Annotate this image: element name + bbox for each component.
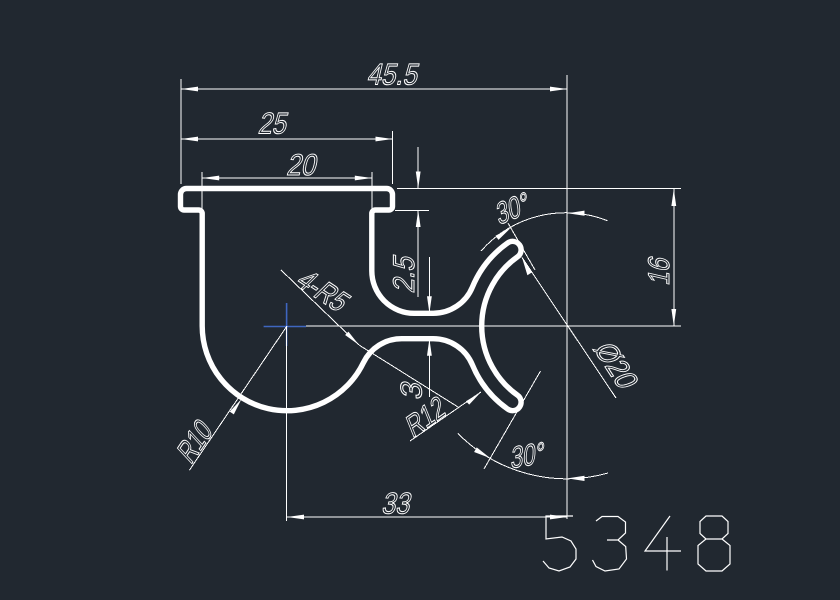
svg-text:45.5: 45.5	[365, 58, 423, 92]
svg-text:30°: 30°	[510, 436, 546, 476]
